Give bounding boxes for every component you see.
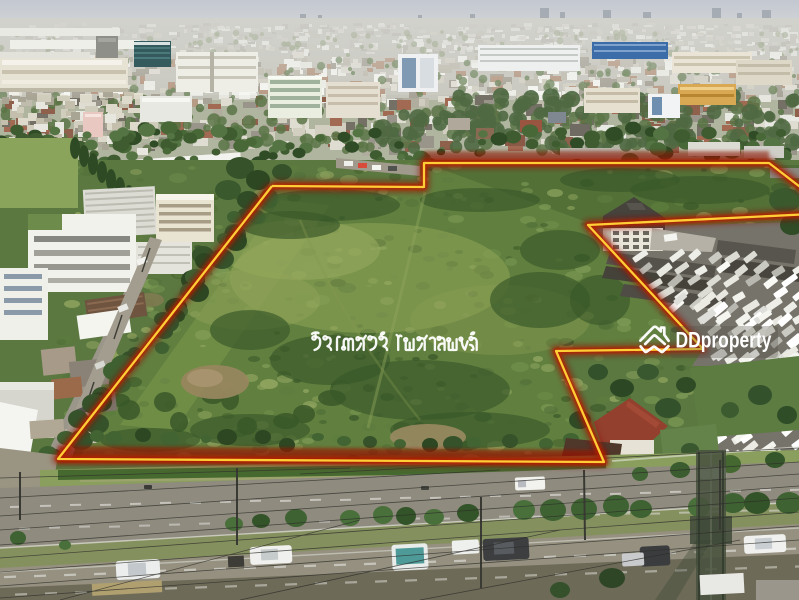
svg-text:DDproperty: DDproperty [676, 328, 772, 353]
